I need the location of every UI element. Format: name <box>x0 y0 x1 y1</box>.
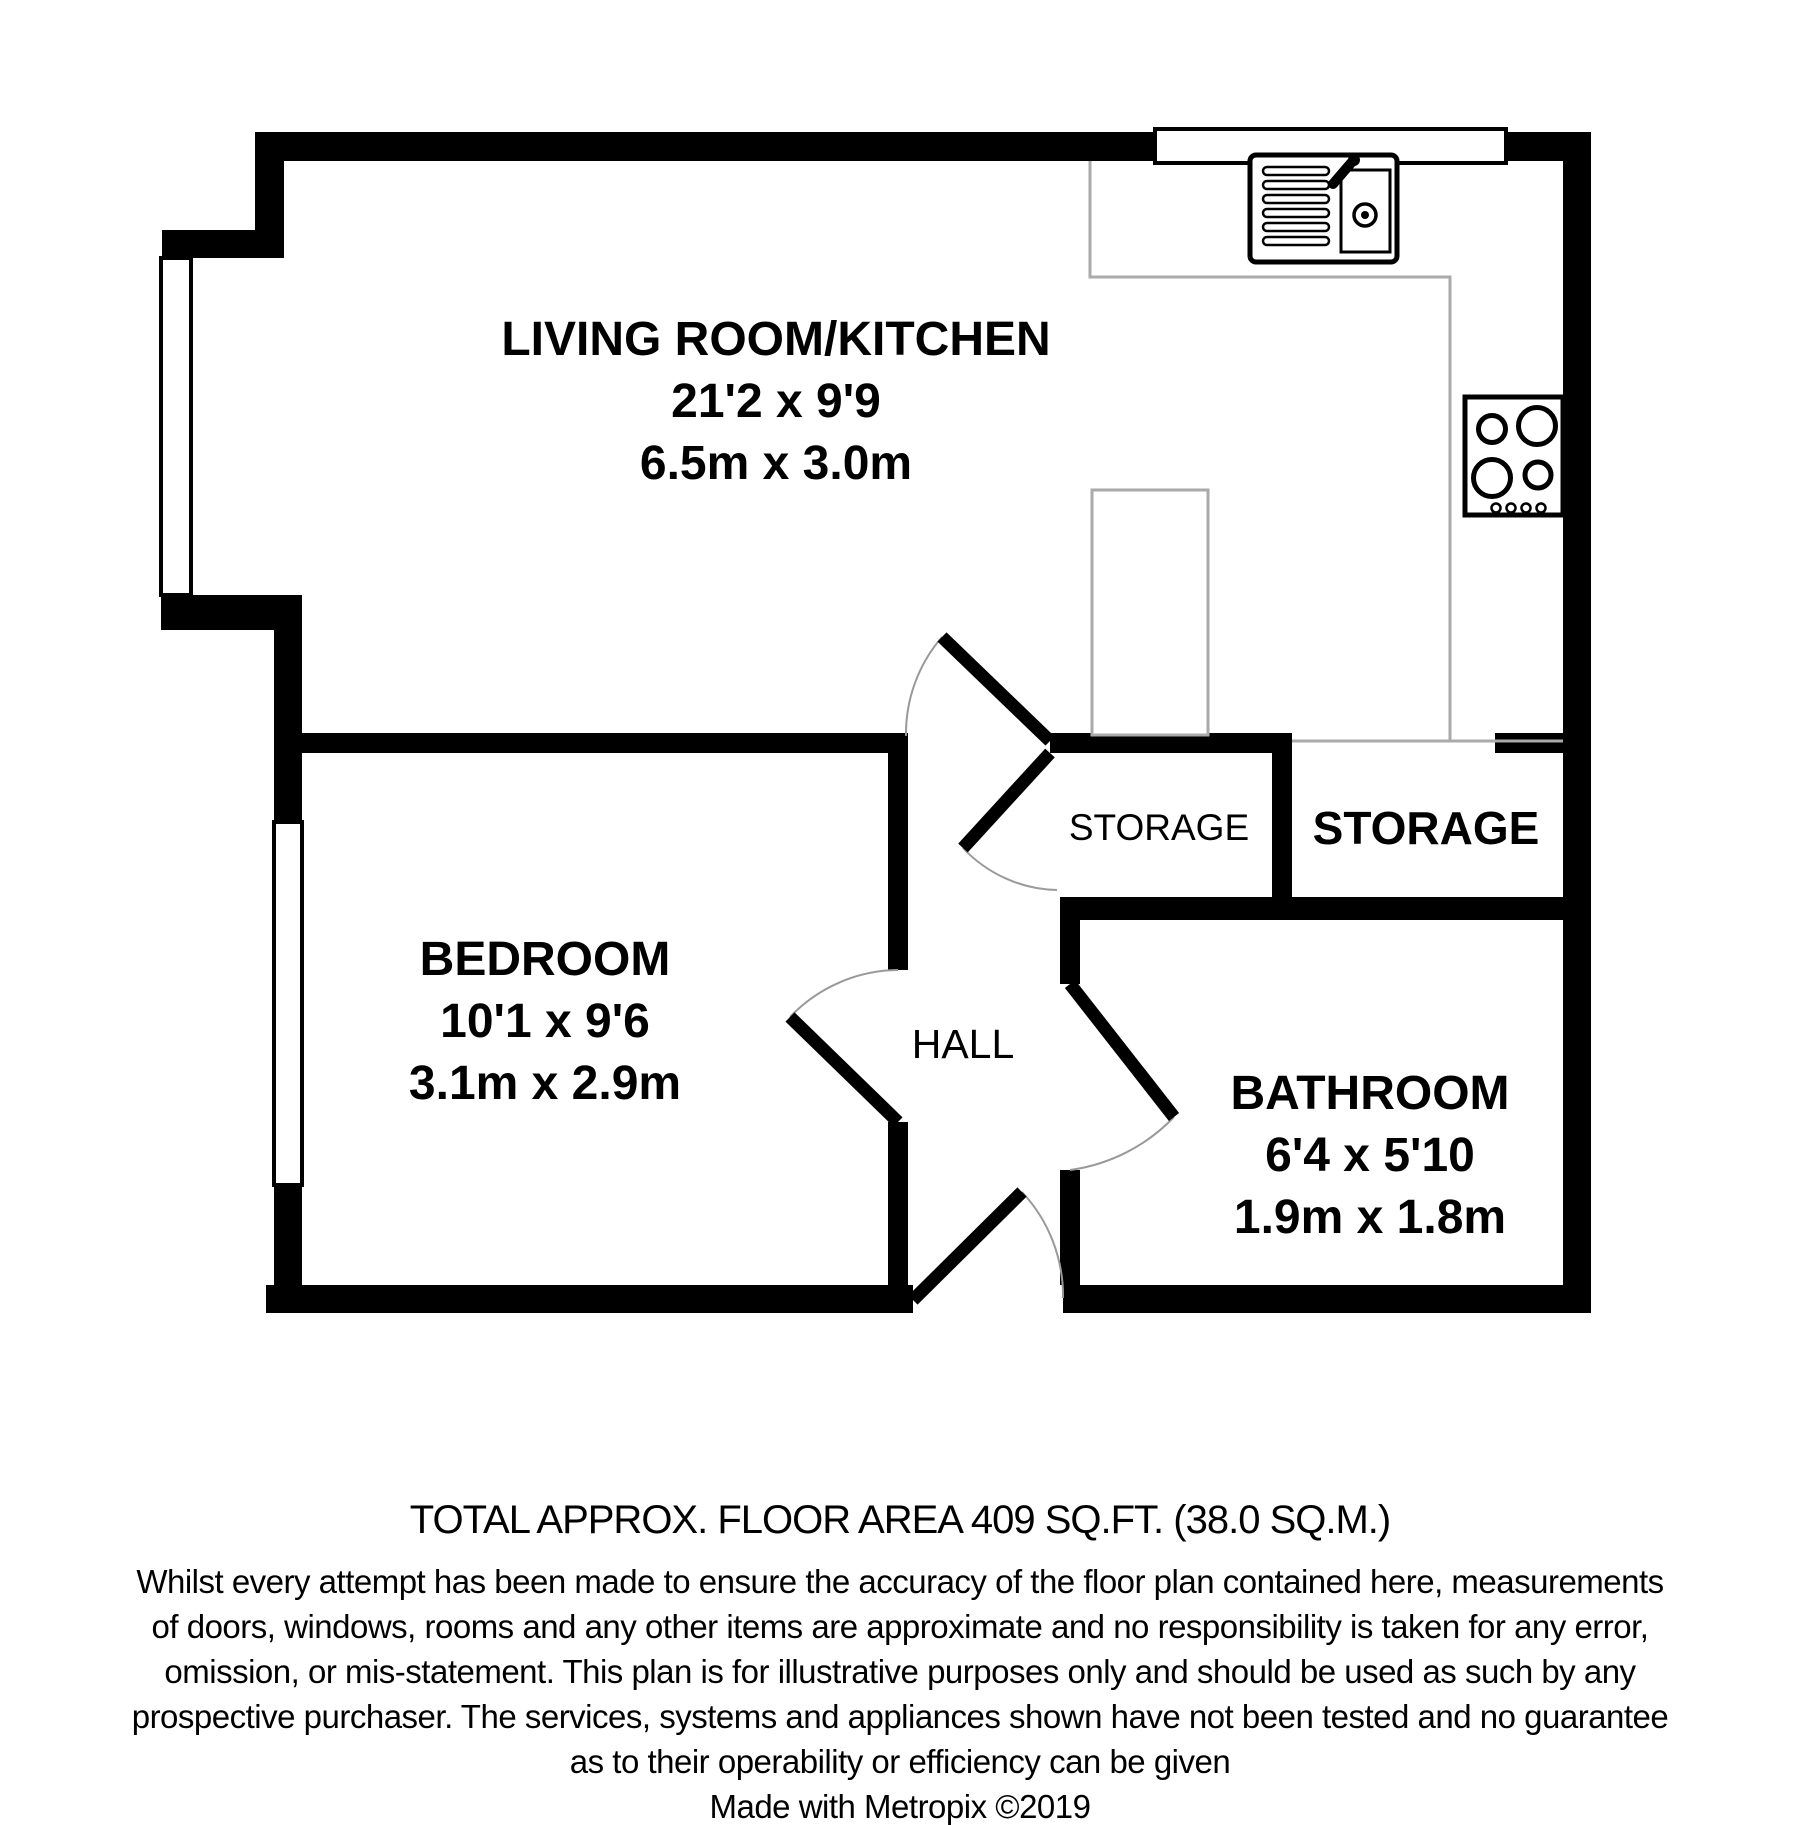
living-room-name: LIVING ROOM/KITCHEN <box>501 309 1050 371</box>
wall-step-horizontal <box>162 230 284 258</box>
wall-storage-divider <box>1272 753 1292 897</box>
wall-bottom-right <box>1063 1285 1591 1313</box>
bathroom-size-imperial: 6'4 x 5'10 <box>1230 1125 1509 1187</box>
window-living-left-icon <box>161 258 191 595</box>
hob-4-burner-icon <box>1465 397 1563 515</box>
total-floor-area: TOTAL APPROX. FLOOR AREA 409 SQ.FT. (38.… <box>0 1498 1800 1543</box>
bathroom-name: BATHROOM <box>1230 1063 1509 1125</box>
disclaimer-line: omission, or mis-statement. This plan is… <box>0 1649 1800 1694</box>
door-storage-small-icon <box>963 753 1057 890</box>
door-bedroom-icon <box>790 970 898 1122</box>
floor-plan-page: LIVING ROOM/KITCHEN 21'2 x 9'9 6.5m x 3.… <box>0 0 1800 1825</box>
kitchen-sink-icon <box>1250 154 1397 262</box>
bedroom-size-imperial: 10'1 x 9'6 <box>409 991 681 1053</box>
label-storage-small: STORAGE <box>1069 797 1249 859</box>
windows <box>161 129 1506 1185</box>
wall-storage-right-top <box>1495 733 1563 753</box>
door-bathroom-icon <box>1070 984 1174 1170</box>
disclaimer-line: as to their operability or efficiency ca… <box>0 1739 1800 1784</box>
label-bathroom: BATHROOM 6'4 x 5'10 1.9m x 1.8m <box>1230 1063 1509 1249</box>
tall-cupboard <box>1092 490 1208 735</box>
disclaimer-line: Whilst every attempt has been made to en… <box>0 1559 1800 1604</box>
wall-bedroom-left-upper <box>274 630 302 822</box>
wall-bathroom-top <box>1060 897 1563 920</box>
disclaimer-line: prospective purchaser. The services, sys… <box>0 1694 1800 1739</box>
bathroom-size-metric: 1.9m x 1.8m <box>1230 1187 1509 1249</box>
disclaimer: Whilst every attempt has been made to en… <box>0 1559 1800 1825</box>
wall-bottom-left <box>266 1285 913 1313</box>
bedroom-size-metric: 3.1m x 2.9m <box>409 1053 681 1115</box>
label-hall: HALL <box>912 1013 1015 1075</box>
label-storage-large: STORAGE <box>1313 797 1540 859</box>
metropix-credit: Made with Metropix ©2019 <box>0 1784 1800 1825</box>
living-room-size-metric: 6.5m x 3.0m <box>501 433 1050 495</box>
bedroom-name: BEDROOM <box>409 929 681 991</box>
label-living-room: LIVING ROOM/KITCHEN 21'2 x 9'9 6.5m x 3.… <box>501 309 1050 495</box>
door-entrance-icon <box>913 1192 1063 1300</box>
wall-hall-left-upper <box>888 753 908 970</box>
wall-bedroom-top <box>284 733 908 753</box>
disclaimer-line: of doors, windows, rooms and any other i… <box>0 1604 1800 1649</box>
wall-bathroom-left-upper <box>1060 920 1080 984</box>
wall-bathroom-left-lower <box>1060 1170 1080 1285</box>
living-room-size-imperial: 21'2 x 9'9 <box>501 371 1050 433</box>
window-bedroom-left-icon <box>274 822 302 1185</box>
door-living-to-hall-icon <box>906 637 1050 741</box>
wall-hall-left-lower <box>888 1122 908 1285</box>
label-bedroom: BEDROOM 10'1 x 9'6 3.1m x 2.9m <box>409 929 681 1115</box>
wall-right <box>1563 132 1591 1313</box>
footer: TOTAL APPROX. FLOOR AREA 409 SQ.FT. (38.… <box>0 1498 1800 1825</box>
wall-left-jog <box>161 595 302 630</box>
